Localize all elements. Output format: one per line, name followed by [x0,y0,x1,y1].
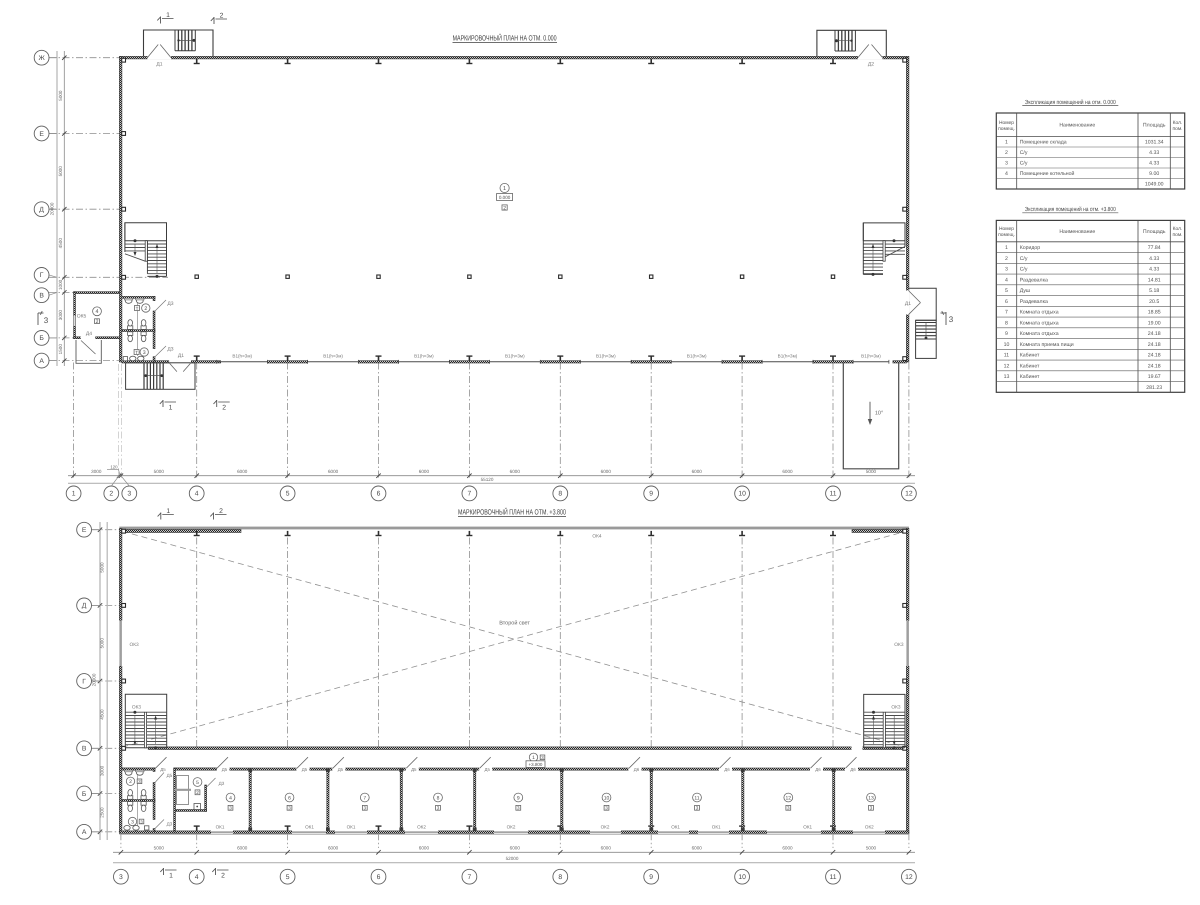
svg-text:10: 10 [738,874,746,881]
svg-text:С/у: С/у [1020,256,1028,262]
svg-text:Комната отдыха: Комната отдыха [1020,320,1059,326]
svg-text:Д1: Д1 [156,61,162,67]
svg-text:Д6: Д6 [634,767,640,772]
svg-text:10: 10 [1004,342,1010,348]
svg-text:Наименование: Наименование [1059,123,1095,129]
svg-text:ОК2: ОК2 [865,824,874,829]
svg-text:пом.: пом. [1172,233,1182,238]
svg-text:10: 10 [738,491,746,498]
svg-text:3: 3 [143,350,146,356]
svg-text:5000: 5000 [58,166,63,177]
svg-text:4: 4 [1005,171,1008,177]
svg-text:Б: Б [39,335,44,342]
svg-text:6000: 6000 [782,846,793,851]
svg-text:2: 2 [1005,150,1008,156]
svg-text:С/у: С/у [1020,161,1028,167]
svg-text:В1(h=3м): В1(h=3м) [323,353,343,358]
svg-text:ОК1: ОК1 [712,824,721,829]
svg-text:12: 12 [905,491,913,498]
svg-text:Д: Д [39,207,44,214]
svg-text:Д5: Д5 [167,773,173,778]
svg-text:ОК2: ОК2 [417,824,426,829]
svg-text:3: 3 [364,806,367,811]
svg-text:Комната приема пищи: Комната приема пищи [1020,342,1074,348]
svg-text:Раздевалка: Раздевалка [1020,277,1048,283]
svg-text:4500: 4500 [100,709,105,720]
svg-text:Д3: Д3 [167,347,173,353]
svg-text:5000: 5000 [154,846,165,851]
svg-text:11: 11 [829,874,836,881]
svg-text:13: 13 [868,795,874,801]
svg-text:3: 3 [229,806,232,811]
svg-text:2: 2 [109,491,113,498]
svg-text:1: 1 [503,186,506,192]
svg-text:В1(h=3м): В1(h=3м) [414,353,434,358]
svg-text:6000: 6000 [692,469,703,474]
svg-text:Второй свет: Второй свет [499,620,530,627]
svg-text:МАРКИРОВОЧНЫЙ ПЛАН НА ОТМ. 0.0: МАРКИРОВОЧНЫЙ ПЛАН НА ОТМ. 0.000 [453,34,557,43]
svg-text:4: 4 [229,795,232,801]
svg-text:1000: 1000 [58,279,63,290]
svg-text:Д1: Д1 [178,353,184,359]
svg-text:8: 8 [558,491,562,498]
svg-text:3: 3 [1005,267,1008,273]
svg-text:Кабинет: Кабинет [1020,363,1040,369]
svg-text:19.67: 19.67 [1148,374,1161,380]
svg-text:5: 5 [286,491,290,498]
svg-text:В: В [82,746,87,753]
svg-text:12: 12 [1004,363,1010,369]
svg-text:В1(h=3м): В1(h=3м) [596,353,616,358]
svg-text:Комната отдыха: Комната отдыха [1020,331,1059,337]
svg-text:120: 120 [110,464,118,469]
svg-text:4: 4 [195,491,199,498]
svg-text:Наименование: Наименование [1059,229,1095,235]
svg-text:7: 7 [363,795,366,801]
svg-text:2500: 2500 [100,807,105,818]
svg-text:1031.34: 1031.34 [1145,140,1164,146]
svg-text:Площадь: Площадь [1143,229,1166,235]
svg-text:А: А [82,829,87,836]
svg-text:2: 2 [219,508,223,515]
svg-text:Д5: Д5 [338,767,344,772]
svg-text:2: 2 [503,205,506,211]
svg-text:6000: 6000 [782,469,793,474]
svg-text:4.33: 4.33 [1149,150,1159,156]
svg-text:2: 2 [222,404,226,411]
svg-text:В1(h=3м): В1(h=3м) [505,353,525,358]
svg-text:10: 10 [604,795,610,801]
svg-text:3: 3 [288,806,291,811]
svg-text:Д6: Д6 [724,767,730,772]
svg-text:7: 7 [1005,310,1008,316]
svg-text:2: 2 [129,779,132,785]
svg-text:24.18: 24.18 [1148,331,1161,337]
svg-text:ОК1: ОК1 [803,824,812,829]
svg-text:20.5: 20.5 [1149,299,1159,305]
svg-text:Коридор: Коридор [1020,245,1041,251]
svg-text:1: 1 [166,12,170,19]
svg-text:6000: 6000 [237,846,248,851]
svg-text:4: 4 [195,874,199,881]
svg-text:ОК3: ОК3 [130,642,140,648]
svg-text:Душ: Душ [1020,288,1030,294]
svg-text:Д2: Д2 [868,61,874,67]
svg-text:В1(h=3м): В1(h=3м) [861,353,881,358]
svg-text:Д5: Д5 [302,767,308,772]
svg-text:5000: 5000 [58,90,63,101]
svg-text:6000: 6000 [692,846,703,851]
svg-text:11: 11 [1004,353,1009,359]
svg-text:2: 2 [221,872,225,879]
svg-text:20000: 20000 [92,673,97,686]
svg-text:Д6: Д6 [815,767,821,772]
svg-text:4.33: 4.33 [1149,267,1159,273]
svg-text:Д5: Д5 [484,767,490,772]
svg-text:6000: 6000 [510,846,521,851]
svg-text:6000: 6000 [419,469,430,474]
svg-text:5000: 5000 [100,638,105,649]
svg-text:2: 2 [144,306,147,312]
svg-text:4500: 4500 [58,238,63,249]
svg-text:Д5: Д5 [222,767,228,772]
svg-text:55120: 55120 [481,477,494,482]
svg-text:1: 1 [166,508,170,515]
svg-text:5000: 5000 [154,469,165,474]
svg-text:24.18: 24.18 [1148,353,1161,359]
svg-text:6000: 6000 [601,846,612,851]
svg-text:помещ.: помещ. [998,233,1015,238]
svg-text:Т: Т [136,306,139,311]
svg-text:3: 3 [605,806,608,811]
svg-text:9: 9 [649,874,653,881]
svg-text:ОК1: ОК1 [671,824,680,829]
svg-text:Номер: Номер [999,120,1014,126]
svg-text:Д6: Д6 [850,767,856,772]
svg-text:В: В [39,293,44,300]
svg-text:5000: 5000 [866,846,877,851]
svg-text:Г: Г [40,272,44,279]
svg-text:7: 7 [468,874,472,881]
svg-text:7: 7 [468,491,472,498]
svg-text:Помещение котельной: Помещение котельной [1020,171,1075,177]
svg-text:Д5: Д5 [160,767,166,772]
svg-text:ОК1: ОК1 [305,824,314,829]
svg-text:В1(h=3м): В1(h=3м) [778,353,798,358]
svg-text:1: 1 [169,872,173,879]
svg-text:6000: 6000 [510,469,521,474]
svg-text:19.00: 19.00 [1148,320,1161,326]
svg-text:8: 8 [1005,320,1008,326]
svg-text:4.33: 4.33 [1149,161,1159,167]
svg-text:Кабинет: Кабинет [1020,374,1040,380]
svg-text:Кол.: Кол. [1173,226,1183,232]
svg-text:9.00: 9.00 [1149,171,1159,177]
svg-text:2: 2 [220,12,224,19]
svg-text:1: 1 [72,491,76,498]
svg-text:2: 2 [96,319,99,325]
svg-text:3: 3 [127,491,131,498]
svg-text:пом.: пом. [1172,127,1182,132]
svg-text:Е: Е [82,527,87,534]
svg-text:12: 12 [786,795,792,801]
svg-text:Д3: Д3 [167,822,173,827]
svg-text:11: 11 [829,491,836,498]
svg-text:3: 3 [44,316,49,325]
svg-text:Е: Е [39,131,44,138]
svg-text:24.18: 24.18 [1148,363,1161,369]
svg-text:1500: 1500 [58,344,63,355]
svg-text:3: 3 [437,806,440,811]
svg-text:ОК2: ОК2 [507,824,516,829]
svg-text:5: 5 [1005,288,1008,294]
svg-text:3000: 3000 [58,310,63,321]
svg-text:ОК5: ОК5 [77,313,87,319]
svg-text:ОК4: ОК4 [592,534,602,540]
svg-text:Кабинет: Кабинет [1020,353,1040,359]
svg-text:9: 9 [517,795,520,801]
svg-text:ОК2: ОК2 [601,824,610,829]
svg-text:5000: 5000 [100,562,105,573]
svg-text:9: 9 [1005,331,1008,337]
svg-text:3000: 3000 [91,469,102,474]
svg-text:3: 3 [517,806,520,811]
svg-text:3: 3 [696,806,699,811]
svg-text:3: 3 [119,874,123,881]
svg-text:МАРКИРОВОЧНЫЙ ПЛАН НА ОТМ. +3.: МАРКИРОВОЧНЫЙ ПЛАН НА ОТМ. +3.800 [458,508,566,517]
svg-text:ОК3: ОК3 [894,642,904,648]
svg-text:6: 6 [1005,299,1008,305]
svg-text:+3.800: +3.800 [529,762,543,767]
svg-text:8: 8 [558,874,562,881]
svg-text:14.81: 14.81 [1148,277,1161,283]
svg-text:6000: 6000 [237,469,248,474]
svg-text:1: 1 [532,755,535,761]
svg-text:52000: 52000 [506,856,519,861]
svg-text:20000: 20000 [50,202,55,215]
svg-text:В1(h=3м): В1(h=3м) [687,353,707,358]
svg-text:6000: 6000 [328,846,339,851]
svg-text:5: 5 [286,874,290,881]
svg-text:Экспликация помещений на отм.: Экспликация помещений на отм. 0.000 [1025,99,1117,106]
svg-text:24.18: 24.18 [1148,342,1161,348]
svg-text:4.33: 4.33 [1149,256,1159,262]
svg-text:8: 8 [437,795,440,801]
svg-text:77.84: 77.84 [1148,245,1161,251]
svg-text:6: 6 [377,491,381,498]
svg-text:Кол.: Кол. [1173,120,1183,126]
svg-text:Экспликация помещений на отм.: Экспликация помещений на отм. +3.800 [1025,206,1117,213]
svg-text:6000: 6000 [419,846,430,851]
svg-text:ОК1: ОК1 [216,824,225,829]
svg-text:2: 2 [196,790,199,795]
svg-text:Д4: Д4 [86,331,92,337]
svg-text:4: 4 [1005,277,1008,283]
svg-text:помещ.: помещ. [998,127,1015,132]
svg-text:Комната отдыха: Комната отдыха [1020,310,1059,316]
svg-text:Ж: Ж [38,55,45,62]
svg-text:Г: Г [82,678,86,685]
svg-text:Д5: Д5 [411,767,417,772]
svg-text:ОК3: ОК3 [132,704,142,710]
svg-text:Раздевалка: Раздевалка [1020,299,1048,305]
svg-text:1: 1 [1005,245,1008,251]
svg-text:18.85: 18.85 [1148,310,1161,316]
svg-text:А: А [39,358,44,365]
svg-text:6: 6 [288,795,291,801]
svg-text:12: 12 [905,874,913,881]
svg-text:3: 3 [949,315,954,324]
svg-text:ОК3: ОК3 [891,704,901,710]
svg-text:5000: 5000 [866,469,877,474]
svg-text:1049.00: 1049.00 [1145,182,1164,188]
svg-text:11: 11 [694,795,699,801]
svg-text:6000: 6000 [328,469,339,474]
svg-text:3: 3 [870,806,873,811]
svg-text:6000: 6000 [601,469,612,474]
svg-text:281.23: 281.23 [1146,385,1162,391]
svg-text:3: 3 [131,819,134,825]
svg-text:2: 2 [1005,256,1008,262]
svg-text:Д: Д [82,603,87,610]
svg-text:Б: Б [82,791,87,798]
svg-text:9: 9 [649,491,653,498]
svg-text:1: 1 [1005,140,1008,146]
svg-text:Д3: Д3 [167,301,173,307]
svg-text:10°: 10° [875,411,883,417]
svg-text:5: 5 [196,780,199,786]
svg-text:С/у: С/у [1020,150,1028,156]
svg-text:Номер: Номер [999,226,1014,232]
svg-text:0.000: 0.000 [499,195,511,200]
svg-text:6: 6 [377,874,381,881]
svg-text:5.18: 5.18 [1149,288,1159,294]
svg-text:4: 4 [96,309,99,315]
svg-text:13: 13 [1004,374,1010,380]
svg-text:Д3: Д3 [219,781,225,786]
svg-text:ОК1: ОК1 [347,824,356,829]
svg-text:С/у: С/у [1020,267,1028,273]
svg-text:Д1: Д1 [905,301,911,307]
svg-text:Площадь: Площадь [1143,123,1166,129]
svg-text:3000: 3000 [100,765,105,776]
svg-text:Т: Т [135,350,138,355]
svg-text:3: 3 [787,806,790,811]
svg-text:1: 1 [169,404,173,411]
svg-text:3: 3 [1005,161,1008,167]
svg-text:В1(h=3м): В1(h=3м) [232,353,252,358]
svg-text:Помещение склада: Помещение склада [1020,140,1067,146]
